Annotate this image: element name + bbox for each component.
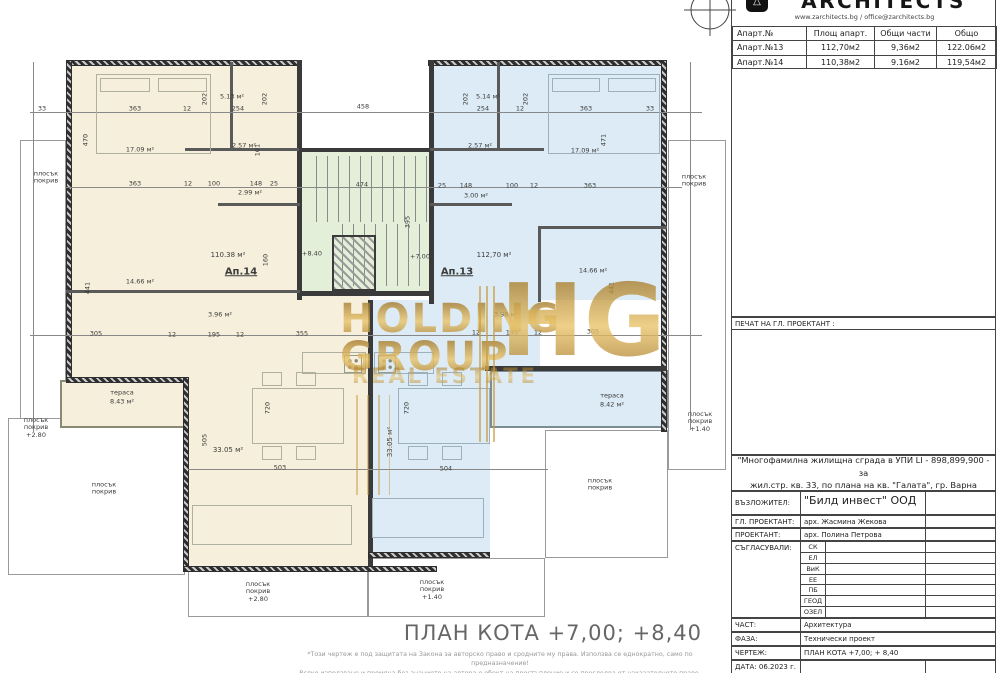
watermark-real-estate: REAL ESTATE bbox=[352, 364, 538, 388]
title-block-empty-area bbox=[731, 69, 996, 317]
plan-annotation: 720 bbox=[403, 402, 410, 414]
watermark-monogram: HG bbox=[500, 262, 666, 379]
chief-designer-label: ГЛ. ПРОЕКТАНТ: bbox=[732, 516, 801, 527]
plan-annotation: 503 bbox=[274, 464, 286, 471]
chief-designer-value: арх. Жасмина Жекова bbox=[801, 516, 926, 527]
compass-icon bbox=[684, 0, 736, 36]
table-cell: 110,38м2 bbox=[807, 56, 875, 70]
table-cell: 9,36м2 bbox=[875, 41, 937, 55]
plan-annotation: 202 bbox=[522, 93, 529, 105]
plan-annotation: 25 bbox=[438, 182, 446, 189]
date-extra-cell2 bbox=[926, 661, 995, 673]
approval-code: СК bbox=[801, 542, 826, 552]
plan-annotation: 33 bbox=[38, 105, 46, 112]
architects-logo-icon: △ bbox=[746, 0, 768, 12]
date-extra-cell bbox=[801, 661, 926, 673]
title-block: △ ARCHITECTS www.zarchitects.bg / office… bbox=[731, 0, 996, 673]
plan-annotation: 101 bbox=[254, 144, 261, 156]
plan-annotation: 395 bbox=[404, 216, 411, 228]
plan-annotation: плосък покрив +1.40 bbox=[688, 411, 712, 433]
plan-annotation: 33.05 м² bbox=[213, 446, 243, 454]
approval-extra-cell bbox=[926, 564, 995, 574]
client-extra-cell bbox=[926, 492, 995, 514]
watermark-column-graphic bbox=[356, 395, 390, 495]
plan-annotation: 25 bbox=[270, 180, 278, 187]
plan-annotation: 17.09 м² bbox=[571, 147, 599, 154]
plan-annotation: 12 bbox=[530, 182, 538, 189]
approval-signature-cell bbox=[826, 542, 926, 552]
plan-annotation: плосък покрив bbox=[34, 171, 58, 186]
plan-annotation: 12 bbox=[183, 105, 191, 112]
drawing-sheet: 17.09 м²5.13 м²2.57 м²2.99 м²110.38 м²Ап… bbox=[0, 0, 1000, 673]
table-header-cell: Общо bbox=[937, 27, 996, 41]
phase-value: Технически проект bbox=[801, 633, 995, 645]
apartments-table: Апарт.№ Площ апарт. Общи части Общо Апар… bbox=[732, 26, 997, 69]
approval-extra-cell bbox=[926, 607, 995, 617]
architects-logo-text: ARCHITECTS bbox=[776, 0, 991, 12]
drawing-row: ЧЕРТЕЖ: ПЛАН КОТА +7,00; + 8,40 bbox=[731, 646, 996, 660]
plan-annotation: 112,70 м² bbox=[477, 251, 512, 259]
plan-annotation: плосък покрив bbox=[92, 482, 116, 497]
table-header-cell: Апарт.№ bbox=[733, 27, 807, 41]
plan-annotation: +8.40 bbox=[302, 250, 322, 257]
approval-code: ВиК bbox=[801, 564, 826, 574]
title-block-header: △ ARCHITECTS www.zarchitects.bg / office… bbox=[731, 0, 996, 69]
plan-annotation: тераса bbox=[110, 389, 133, 396]
plan-annotation: 2.99 м² bbox=[238, 189, 262, 196]
plan-annotation: 505 bbox=[201, 434, 208, 446]
copyright-line1: *Този чертеж е под защитата на Закона за… bbox=[283, 650, 717, 669]
table-header-cell: Площ апарт. bbox=[807, 27, 875, 41]
plan-annotation: 470 bbox=[82, 134, 89, 146]
floor-plan: 17.09 м²5.13 м²2.57 м²2.99 м²110.38 м²Ап… bbox=[0, 0, 728, 673]
project-title-line2: жил.стр. кв. 33, по плана на кв. "Галата… bbox=[732, 479, 995, 491]
plan-annotation: 12 bbox=[168, 331, 176, 338]
plan-annotation: плосък покрив +2.80 bbox=[246, 581, 270, 603]
designer-row: ПРОЕКТАНТ: арх. Полина Петрова bbox=[731, 528, 996, 541]
drawing-label: ЧЕРТЕЖ: bbox=[732, 647, 801, 659]
table-cell: 119,54м2 bbox=[937, 56, 996, 70]
approval-extra-cell bbox=[926, 585, 995, 595]
approvals-block: СЪГЛАСУВАЛИ: СК ЕЛ ВиК ЕЕ ПБ ГЕОД ОЗЕЛ bbox=[731, 541, 996, 618]
plan-annotation: 363 bbox=[584, 182, 596, 189]
approval-code: ПБ bbox=[801, 585, 826, 595]
approval-extra-cell bbox=[926, 553, 995, 563]
plan-annotation: 148 bbox=[250, 180, 262, 187]
plan-annotation: 12 bbox=[184, 180, 192, 187]
approval-signature-cell bbox=[826, 607, 926, 617]
architects-website: www.zarchitects.bg / office@zarchitects.… bbox=[732, 13, 997, 21]
plan-annotation: плосък покрив bbox=[588, 478, 612, 493]
designer-extra-cell bbox=[926, 529, 995, 540]
table-cell: 9.16м2 bbox=[875, 56, 937, 70]
date-row: ДАТА: 06.2023 г. bbox=[731, 660, 996, 673]
phase-label: ФАЗА: bbox=[732, 633, 801, 645]
plan-annotation: 8.43 м² bbox=[110, 398, 134, 405]
plan-annotation: 363 bbox=[580, 105, 592, 112]
approval-code: ЕЛ bbox=[801, 553, 826, 563]
table-header-cell: Общи части bbox=[875, 27, 937, 41]
plan-annotation: 2.57 м² bbox=[468, 142, 492, 149]
plan-annotation: 100 bbox=[208, 180, 220, 187]
phase-row: ФАЗА: Технически проект bbox=[731, 632, 996, 646]
plan-annotation: плосък покрив +1.40 bbox=[420, 579, 444, 601]
drawing-title: ПЛАН КОТА +7,00; +8,40 bbox=[400, 621, 702, 645]
plan-annotation: 355 bbox=[296, 330, 308, 337]
plan-annotation: 12 bbox=[236, 331, 244, 338]
project-title-box: "Многофамилна жилищна сграда в УПИ LI - … bbox=[731, 455, 996, 491]
drawing-value: ПЛАН КОТА +7,00; + 8,40 bbox=[801, 647, 995, 659]
plan-annotation: 5.14 м² bbox=[476, 93, 500, 100]
approval-extra-cell bbox=[926, 575, 995, 585]
plan-annotation: плосък покрив +2.80 bbox=[24, 417, 48, 439]
approval-code: ЕЕ bbox=[801, 575, 826, 585]
plan-annotation: 720 bbox=[264, 402, 271, 414]
stamp-label-row: ПЕЧАТ НА ГЛ. ПРОЕКТАНТ : bbox=[731, 317, 996, 330]
plan-annotation: 17.09 м² bbox=[126, 146, 154, 153]
plan-annotation: тераса bbox=[600, 392, 623, 399]
plan-annotation: 305 bbox=[90, 330, 102, 337]
plan-annotation: 195 bbox=[208, 331, 220, 338]
plan-annotation: 202 bbox=[261, 93, 268, 105]
table-cell: Апарт.№13 bbox=[733, 41, 807, 55]
approval-signature-cell bbox=[826, 564, 926, 574]
approval-signature-cell bbox=[826, 575, 926, 585]
plan-annotation: 254 bbox=[477, 105, 489, 112]
plan-annotation: 474 bbox=[356, 181, 368, 188]
client-value: "Билд инвест" ООД bbox=[801, 492, 926, 514]
plan-annotation: 254 bbox=[232, 105, 244, 112]
part-value: Архитектура bbox=[801, 619, 995, 631]
plan-annotation: 504 bbox=[440, 465, 452, 472]
plan-annotation: +7.00 bbox=[410, 253, 430, 260]
watermark-column-graphic bbox=[479, 286, 499, 442]
approvals-label: СЪГЛАСУВАЛИ: bbox=[732, 542, 801, 617]
plan-annotation: Ап.13 bbox=[441, 266, 473, 278]
plan-annotation: 148 bbox=[460, 182, 472, 189]
plan-annotation: 12 bbox=[516, 105, 524, 112]
plan-annotation: 33 bbox=[646, 105, 654, 112]
plan-annotation: 471 bbox=[600, 134, 607, 146]
plan-annotation: 14.66 м² bbox=[126, 278, 154, 285]
plan-annotation: 100 bbox=[506, 182, 518, 189]
plan-annotation: 458 bbox=[357, 103, 369, 110]
table-cell: 122.06м2 bbox=[937, 41, 996, 55]
plan-annotation: 3.00 м² bbox=[464, 192, 488, 199]
designer-label: ПРОЕКТАНТ: bbox=[732, 529, 801, 540]
approval-code: ГЕОД bbox=[801, 596, 826, 606]
plan-annotation: 3.96 м² bbox=[208, 311, 232, 318]
chief-designer-row: ГЛ. ПРОЕКТАНТ: арх. Жасмина Жекова bbox=[731, 515, 996, 528]
copyright-line2: Всяко използване и промяна без знанието … bbox=[283, 669, 717, 673]
plan-annotation: Ап.14 bbox=[225, 266, 257, 278]
approval-signature-cell bbox=[826, 553, 926, 563]
client-row: ВЪЗЛОЖИТЕЛ: "Билд инвест" ООД bbox=[731, 491, 996, 515]
plan-annotation: 363 bbox=[129, 180, 141, 187]
table-cell: Апарт.№14 bbox=[733, 56, 807, 70]
stamp-label: ПЕЧАТ НА ГЛ. ПРОЕКТАНТ : bbox=[732, 318, 838, 329]
approval-extra-cell bbox=[926, 596, 995, 606]
approval-extra-cell bbox=[926, 542, 995, 552]
plan-annotation: 363 bbox=[129, 105, 141, 112]
approval-code: ОЗЕЛ bbox=[801, 607, 826, 617]
plan-annotation: 202 bbox=[462, 93, 469, 105]
plan-annotation: 160 bbox=[262, 254, 269, 266]
table-cell: 112,70м2 bbox=[807, 41, 875, 55]
part-row: ЧАСТ: Архитектура bbox=[731, 618, 996, 632]
stamp-area bbox=[731, 330, 996, 455]
part-label: ЧАСТ: bbox=[732, 619, 801, 631]
plan-annotation: 5.13 м² bbox=[220, 93, 244, 100]
approval-signature-cell bbox=[826, 596, 926, 606]
date-label: ДАТА: 06.2023 г. bbox=[732, 661, 801, 673]
plan-annotation: 441 bbox=[84, 282, 91, 294]
plan-annotation: 110.38 м² bbox=[211, 251, 246, 259]
copyright-note: *Този чертеж е под защитата на Закона за… bbox=[283, 650, 717, 673]
plan-annotation: 8.42 м² bbox=[600, 401, 624, 408]
client-label: ВЪЗЛОЖИТЕЛ: bbox=[732, 492, 801, 514]
approval-signature-cell bbox=[826, 585, 926, 595]
plan-annotation: 202 bbox=[201, 93, 208, 105]
project-title-line1: "Многофамилна жилищна сграда в УПИ LI - … bbox=[732, 454, 995, 479]
designer-value: арх. Полина Петрова bbox=[801, 529, 926, 540]
chief-designer-extra-cell bbox=[926, 516, 995, 527]
plan-annotation: плосък покрив bbox=[682, 174, 706, 189]
